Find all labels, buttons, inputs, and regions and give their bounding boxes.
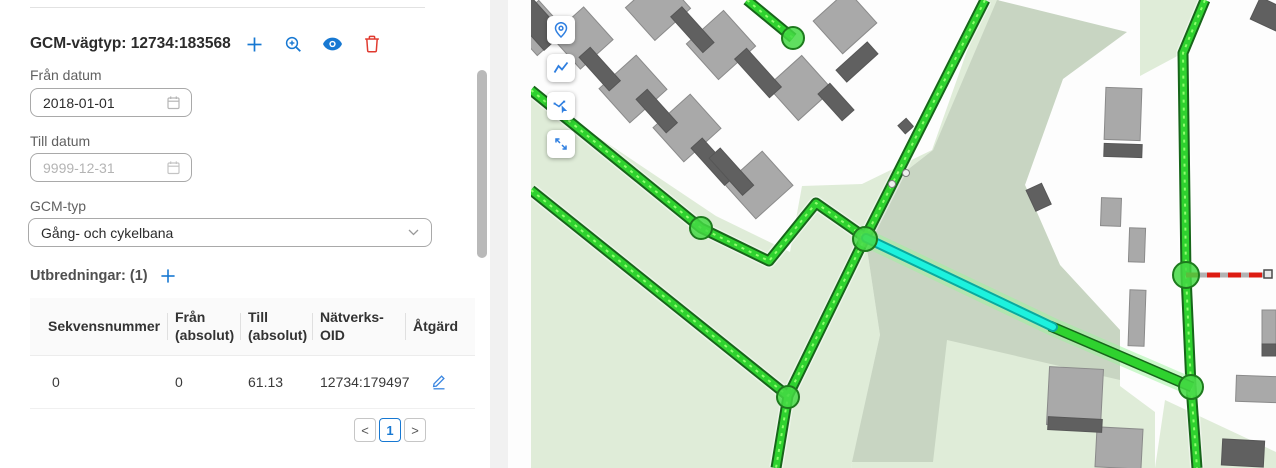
cell-sekvensnummer: 0 xyxy=(30,355,167,408)
panel-scrollbar[interactable] xyxy=(477,70,487,258)
draw-line-button[interactable] xyxy=(547,54,575,82)
show-button[interactable] xyxy=(323,34,343,54)
plus-icon xyxy=(246,36,263,53)
col-fran-absolut: Från (absolut) xyxy=(167,298,240,355)
node xyxy=(777,386,799,408)
panel-header: GCM-vägtyp: 12734:183568 xyxy=(30,34,382,54)
table-header-row: Sekvensnummer Från (absolut) Till (absol… xyxy=(30,298,475,355)
plus-icon xyxy=(160,268,176,284)
extents-header: Utbredningar: (1) xyxy=(30,266,178,286)
eye-icon xyxy=(323,37,342,51)
edit-pencil-icon xyxy=(431,373,447,390)
panel-title: GCM-vägtyp: 12734:183568 xyxy=(30,35,231,53)
polyline-icon xyxy=(553,60,569,76)
pagination: < 1 > xyxy=(354,418,426,442)
trash-icon xyxy=(364,35,380,53)
cell-action xyxy=(405,355,475,408)
panel-top-divider xyxy=(30,7,425,8)
col-atgard: Åtgärd xyxy=(405,298,475,355)
location-pin-icon xyxy=(553,22,569,38)
select-line-button[interactable] xyxy=(547,92,575,120)
calendar-icon[interactable] xyxy=(166,95,181,110)
node xyxy=(853,227,877,251)
delete-button[interactable] xyxy=(362,34,382,54)
from-date-label: Från datum xyxy=(30,67,102,83)
pagination-prev-button[interactable]: < xyxy=(354,418,376,442)
expand-arrows-icon xyxy=(553,136,569,152)
select-line-icon xyxy=(553,98,569,114)
map-canvas[interactable] xyxy=(531,0,1276,468)
gcm-type-value: Gång- och cykelbana xyxy=(41,225,408,241)
calendar-icon[interactable] xyxy=(166,160,181,175)
node xyxy=(782,27,804,49)
vertex-dot xyxy=(889,181,896,188)
cell-till: 61.13 xyxy=(240,355,312,408)
extents-table: Sekvensnummer Från (absolut) Till (absol… xyxy=(30,298,475,409)
map-view[interactable] xyxy=(508,0,1276,468)
from-date-input[interactable] xyxy=(43,95,166,111)
pagination-page-1[interactable]: 1 xyxy=(379,418,401,442)
gcm-type-label: GCM-typ xyxy=(30,198,86,214)
locate-button[interactable] xyxy=(547,16,575,44)
add-button[interactable] xyxy=(245,34,265,54)
to-date-label: Till datum xyxy=(30,133,90,149)
to-date-field[interactable] xyxy=(30,153,192,182)
link-end-marker xyxy=(1264,270,1272,278)
node xyxy=(1179,375,1203,399)
node xyxy=(690,217,712,239)
to-date-input[interactable] xyxy=(43,160,166,176)
zoom-to-button[interactable] xyxy=(284,34,304,54)
node xyxy=(1173,262,1199,288)
cell-fran: 0 xyxy=(167,355,240,408)
cell-natverks-oid: 12734:179497 xyxy=(312,355,405,408)
table-row: 0 0 61.13 12734:179497 xyxy=(30,355,475,408)
edit-extent-button[interactable] xyxy=(429,372,449,392)
chevron-down-icon xyxy=(408,229,419,236)
gcm-type-select[interactable]: Gång- och cykelbana xyxy=(28,218,432,247)
from-date-field[interactable] xyxy=(30,88,192,117)
zoom-in-icon xyxy=(285,36,302,53)
pagination-next-button[interactable]: > xyxy=(404,418,426,442)
add-extent-button[interactable] xyxy=(158,266,178,286)
col-till-absolut: Till (absolut) xyxy=(240,298,312,355)
map-toolbar xyxy=(547,16,575,158)
app-window: GCM-vägtyp: 12734:183568 Från datum xyxy=(0,0,1276,468)
expand-button[interactable] xyxy=(547,130,575,158)
col-sekvensnummer: Sekvensnummer xyxy=(30,298,167,355)
vertex-dot xyxy=(903,170,910,177)
panel-map-divider xyxy=(490,0,508,468)
panel-header-toolbar xyxy=(245,34,382,54)
feature-details-panel: GCM-vägtyp: 12734:183568 Från datum xyxy=(0,0,490,468)
col-natverks-oid: Nätverks-OID xyxy=(312,298,405,355)
extents-heading: Utbredningar: (1) xyxy=(30,268,148,284)
